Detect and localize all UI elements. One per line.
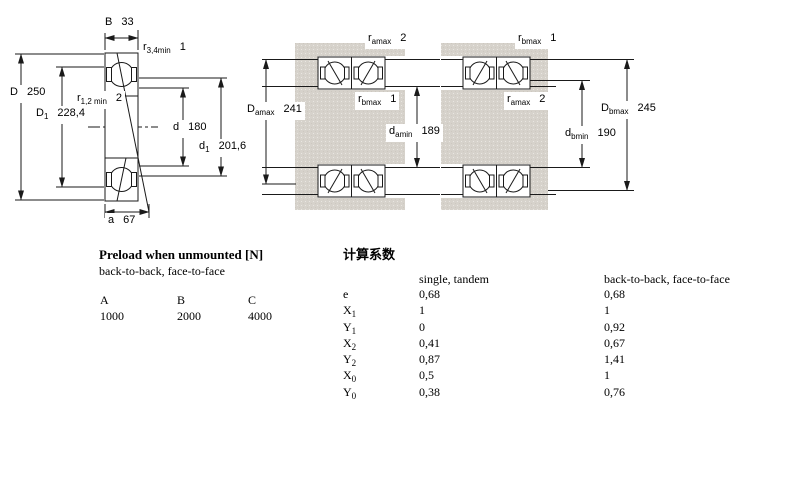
- factor-symbol: Y0: [343, 385, 356, 403]
- dim-label-D: D250: [7, 85, 48, 103]
- bearing-pair-bottom: [463, 165, 530, 197]
- preload-col-header: A: [100, 293, 109, 307]
- factor-symbol: e: [343, 287, 348, 305]
- factor-row: e0,680,68: [343, 287, 763, 303]
- factor-value-paired: 0,92: [604, 320, 625, 334]
- factors-title: 计算系数: [343, 248, 395, 262]
- dim-label-r34: r3,4min1: [140, 40, 189, 58]
- preload-col-header: B: [177, 293, 185, 307]
- dim-label-Damax: Damax241: [244, 102, 305, 120]
- preload-table: Preload when unmounted [N] back-to-back,…: [99, 248, 334, 328]
- factor-value-single: 0,38: [419, 385, 440, 399]
- factor-value-paired: 0,68: [604, 287, 625, 301]
- preload-title: Preload when unmounted [N]: [99, 248, 263, 262]
- factor-row: X20,410,67: [343, 336, 763, 352]
- factor-symbol: X1: [343, 303, 356, 321]
- factor-row: Y100,92: [343, 320, 763, 336]
- factors-col2-header: back-to-back, face-to-face: [604, 272, 730, 286]
- factor-value-single: 0: [419, 320, 425, 334]
- bearing-datasheet-page: B33 r3,4min1 D250 r1,2 min2 D1228,4 d180…: [0, 0, 800, 500]
- dim-label-B: B33: [102, 15, 137, 33]
- factor-row: Y20,871,41: [343, 352, 763, 368]
- factor-symbol: Y2: [343, 352, 356, 370]
- dim-label-ramax-b: ramax2: [504, 92, 548, 110]
- bearing-pair-top: [463, 57, 530, 89]
- dim-label-ramax-a: ramax2: [365, 31, 409, 49]
- dim-label-D1: D1228,4: [33, 106, 88, 124]
- factor-value-single: 0,68: [419, 287, 440, 301]
- bearing-pair-top: [318, 57, 385, 89]
- factor-value-single: 0,87: [419, 352, 440, 366]
- dim-label-a: a67: [105, 213, 138, 231]
- dim-label-dbmin: dbmin190: [562, 126, 619, 144]
- factors-rows: e0,680,68 X111 Y100,92 X20,410,67 Y20,87…: [343, 287, 763, 401]
- factor-value-single: 0,5: [419, 368, 434, 382]
- factor-value-paired: 1,41: [604, 352, 625, 366]
- dim-label-d1: d1201,6: [196, 139, 249, 157]
- factor-row: X111: [343, 303, 763, 319]
- preload-value: 2000: [177, 309, 201, 323]
- dim-label-rbmax-b: rbmax1: [515, 31, 559, 49]
- factor-value-paired: 0,76: [604, 385, 625, 399]
- dim-label-Dbmax: Dbmax245: [598, 101, 659, 119]
- dim-label-d: d180: [170, 120, 209, 138]
- factors-col1-header: single, tandem: [419, 272, 489, 286]
- preload-subtitle: back-to-back, face-to-face: [99, 264, 225, 278]
- factor-row: Y00,380,76: [343, 385, 763, 401]
- factor-value-single: 1: [419, 303, 425, 317]
- calculation-factors-table: 计算系数 single, tandem back-to-back, face-t…: [343, 248, 763, 408]
- dim-label-rbmax-a: rbmax1: [355, 92, 399, 110]
- bearing-pair-bottom: [318, 165, 385, 197]
- dim-label-damin: damin189: [386, 124, 443, 142]
- factor-value-paired: 0,67: [604, 336, 625, 350]
- factor-symbol: Y1: [343, 320, 356, 338]
- factor-row: X00,51: [343, 368, 763, 384]
- preload-value: 1000: [100, 309, 124, 323]
- dimension-lines-right: [582, 60, 627, 191]
- factor-symbol: X0: [343, 368, 356, 386]
- factor-value-paired: 1: [604, 303, 610, 317]
- factor-symbol: X2: [343, 336, 356, 354]
- factor-value-single: 0,41: [419, 336, 440, 350]
- preload-col-header: C: [248, 293, 256, 307]
- factor-value-paired: 1: [604, 368, 610, 382]
- preload-value: 4000: [248, 309, 272, 323]
